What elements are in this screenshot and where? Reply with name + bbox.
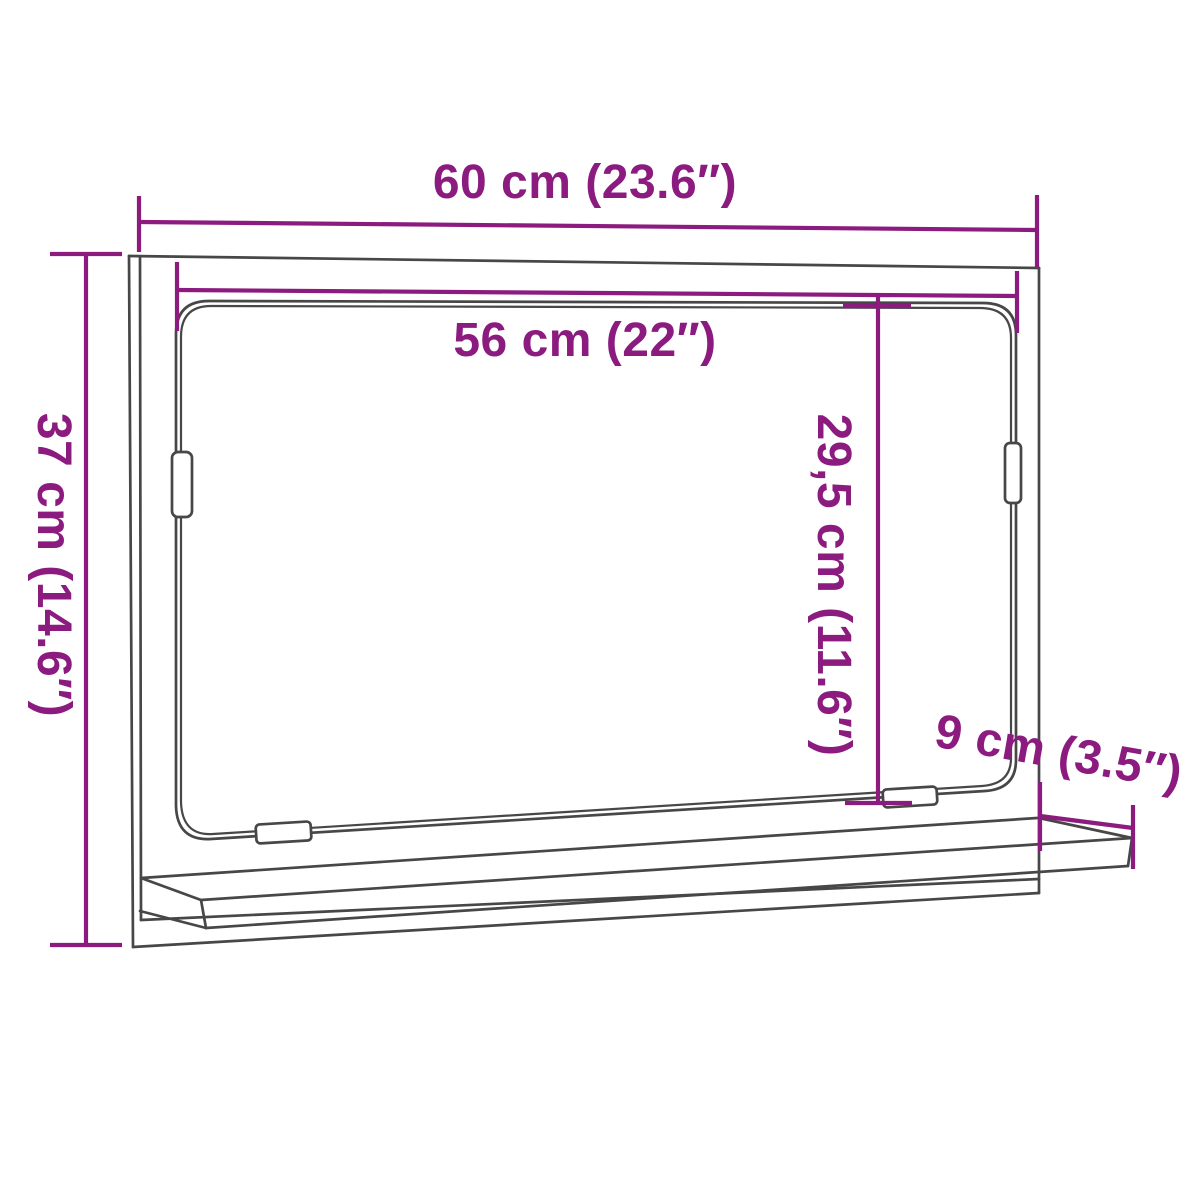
mirror-width-label: 56 cm (22″) <box>453 314 716 367</box>
back-panel-left-inner-edge <box>140 258 141 920</box>
mirror-height-dimension: 29,5 cm (11.6″) <box>807 294 912 803</box>
mirror <box>176 301 1016 839</box>
left-mirror-clip <box>256 821 312 843</box>
mirror-hardware <box>172 443 1021 844</box>
right-mirror-handle <box>1005 443 1021 503</box>
cabinet-height-dimension: 37 cm (14.6″) <box>27 254 122 945</box>
cabinet-width-dimension-line <box>139 222 1037 230</box>
mirror-outer-outline <box>176 301 1016 839</box>
mirror-width-dimension: 56 cm (22″) <box>177 262 1017 367</box>
shelf-front-top-edge <box>201 838 1132 900</box>
mirror-width-dimension-line <box>177 290 1017 296</box>
shelf-front-left-edge <box>201 900 206 928</box>
cabinet-width-dimension: 60 cm (23.6″) <box>139 156 1037 268</box>
dimension-diagram-canvas: 60 cm (23.6″) 37 cm (14.6″) 56 cm (22″) … <box>0 0 1200 1200</box>
mirror-cabinet-dimension-diagram: 60 cm (23.6″) 37 cm (14.6″) 56 cm (22″) … <box>0 0 1200 1200</box>
back-panel-top-edge <box>129 256 1039 268</box>
back-panel-left-outer-edge <box>129 256 133 947</box>
shelf-left-top-edge <box>141 878 201 900</box>
mirror-height-label: 29,5 cm (11.6″) <box>807 414 860 757</box>
cabinet-width-label: 60 cm (23.6″) <box>433 156 737 209</box>
mirror-inner-outline <box>181 306 1011 834</box>
left-mirror-handle <box>172 452 192 517</box>
back-panel-bottom-front-edge <box>141 879 1039 920</box>
cabinet-height-label: 37 cm (14.6″) <box>27 413 80 717</box>
